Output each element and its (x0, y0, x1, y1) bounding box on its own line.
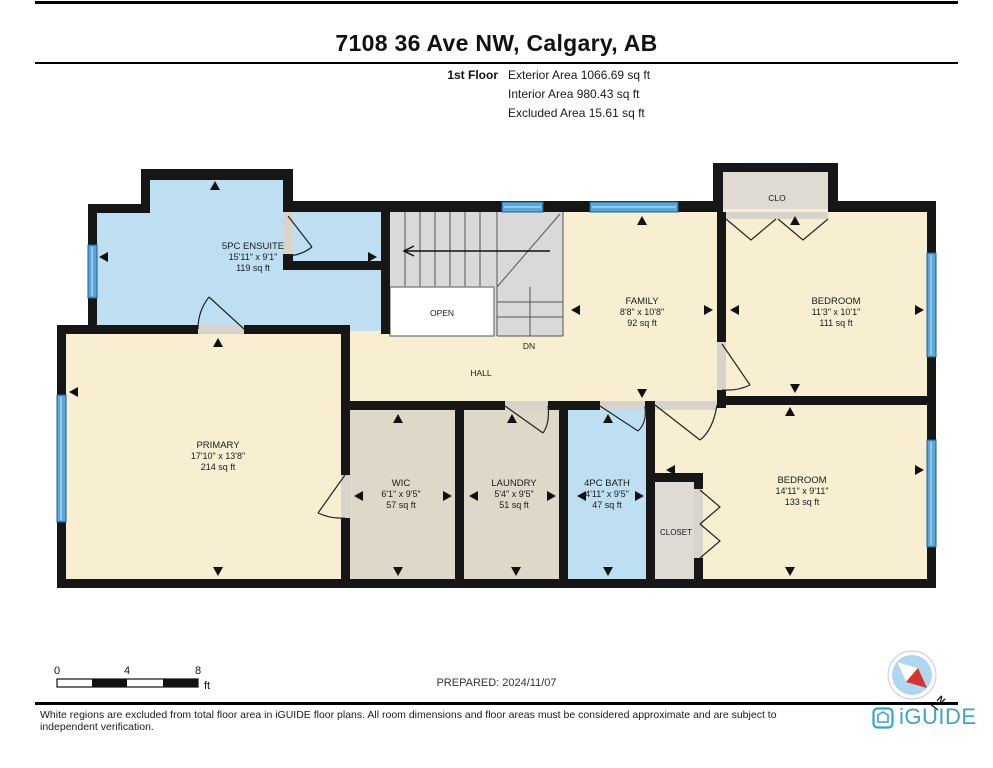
brand-logo: iGUIDE (872, 704, 977, 730)
clo-label: CLO (768, 193, 786, 203)
prepared-date: PREPARED: 2024/11/07 (0, 677, 993, 689)
room-label: 4PC BATH (584, 478, 630, 489)
room-dims: 15'11" x 9'1" (229, 252, 278, 262)
room-dims: 8'8" x 10'8" (620, 307, 664, 317)
open-label: OPEN (430, 308, 454, 318)
scale-4: 4 (124, 665, 130, 677)
room-label: 5PC ENSUITE (222, 241, 284, 252)
dn-label: DN (523, 341, 535, 351)
scale-0: 0 (54, 665, 60, 677)
room-area: 214 sq ft (201, 462, 236, 472)
room-area: 119 sq ft (236, 263, 270, 273)
room-area: 51 sq ft (499, 500, 529, 510)
footer-divider-line (35, 702, 958, 705)
room-area: 111 sq ft (819, 318, 853, 328)
room-dims: 11'3" x 10'1" (812, 307, 861, 317)
floor-plan-drawing: 5PC ENSUITE 15'11" x 9'1" 119 sq ft PRIM… (0, 0, 993, 768)
room-area: 47 sq ft (592, 500, 622, 510)
room-area: 92 sq ft (627, 318, 657, 328)
room-area: 57 sq ft (386, 500, 416, 510)
room-label: PRIMARY (196, 440, 240, 451)
scale-8: 8 (195, 665, 201, 677)
room-dims: 14'11" x 9'11" (775, 486, 828, 496)
room-dims: 5'4" x 9'5" (494, 489, 533, 499)
brand-icon (872, 706, 895, 729)
room-area: 133 sq ft (785, 497, 820, 507)
room-dims: 17'10" x 13'8" (191, 451, 245, 461)
disclaimer-text: White regions are excluded from total fl… (40, 709, 830, 733)
room-label: BEDROOM (811, 296, 860, 307)
hall-label: HALL (470, 368, 492, 378)
room-label: FAMILY (625, 296, 659, 307)
closet-label: CLOSET (660, 528, 692, 537)
room-dims: 4'11" x 9'5" (585, 489, 629, 499)
room-label: BEDROOM (777, 475, 826, 486)
brand-name: iGUIDE (899, 704, 977, 730)
room-label: LAUNDRY (491, 478, 537, 489)
room-dims: 6'1" x 9'5" (381, 489, 420, 499)
room-label: WIC (392, 478, 411, 489)
floor-plan-page: 7108 36 Ave NW, Calgary, AB 1st Floor Ex… (0, 0, 993, 768)
